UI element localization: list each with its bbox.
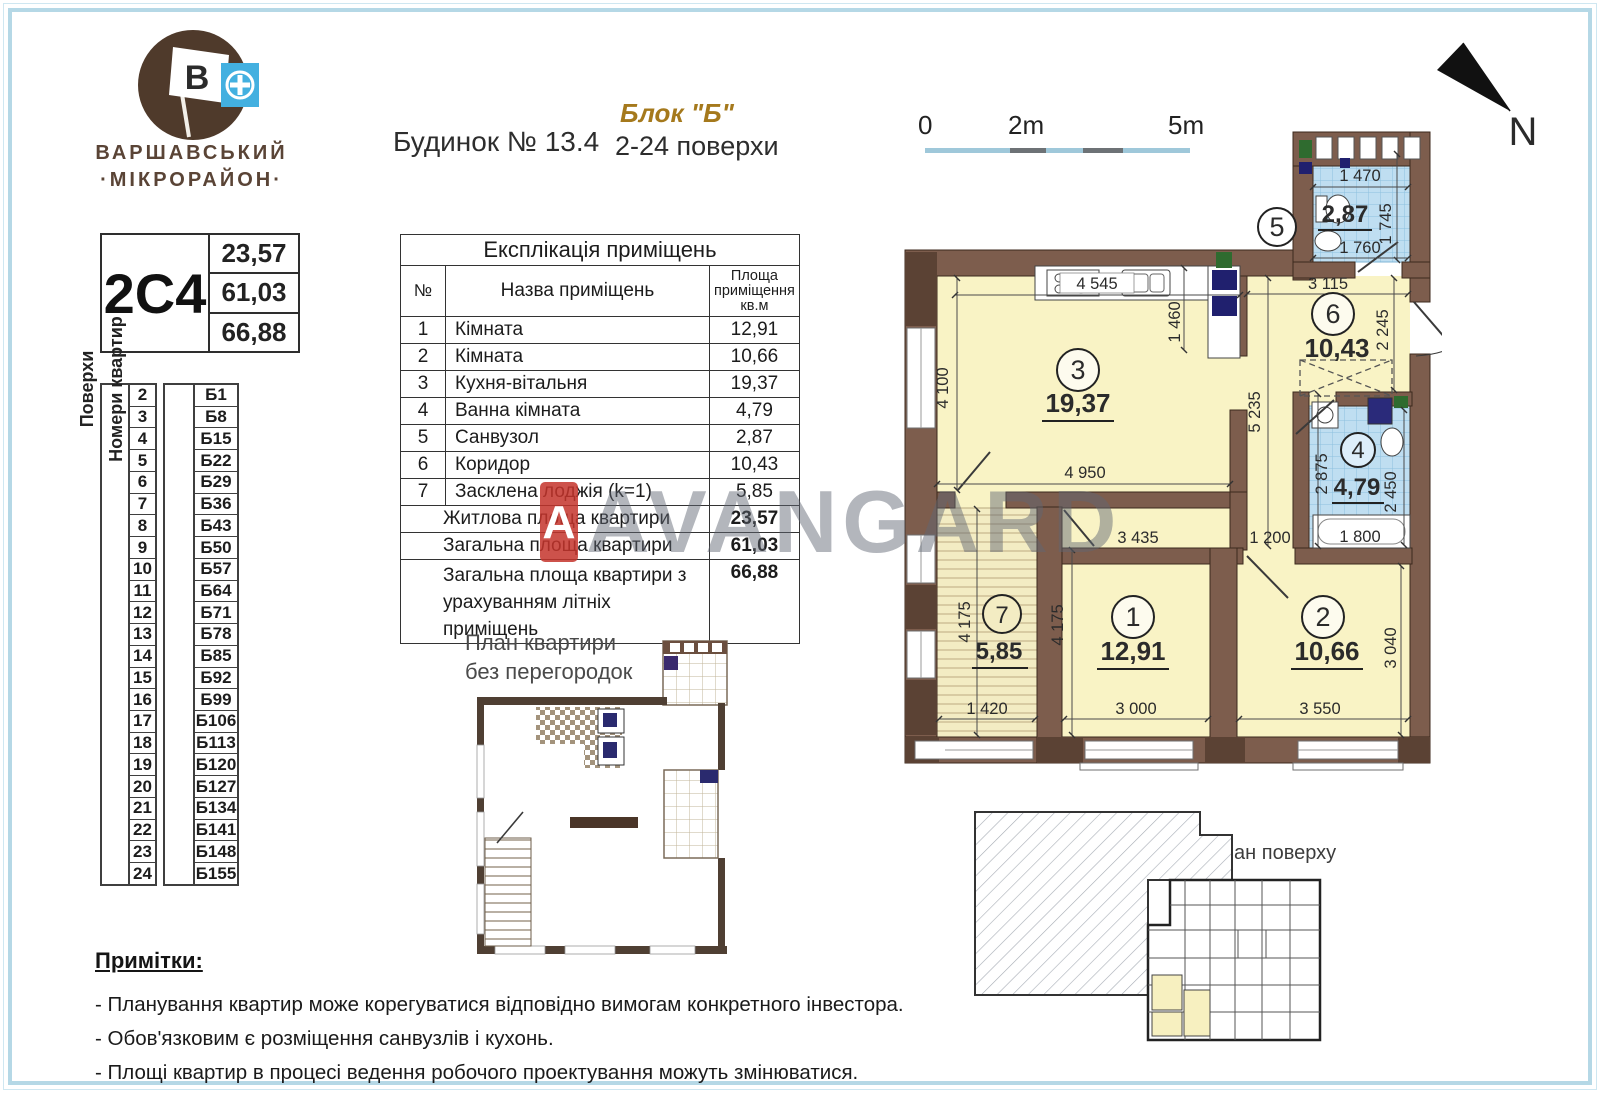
floor-cell: 21 xyxy=(130,798,155,820)
apt-cell: Б71 xyxy=(195,602,237,624)
room-area: 10,66 xyxy=(1294,636,1359,666)
floor-cell: 20 xyxy=(130,776,155,798)
apartment-plan: 4 545 1 460 4 100 4 950 5 235 3 435 1 20… xyxy=(893,115,1442,775)
flag-letter: В xyxy=(185,59,210,97)
dim-label: 4 950 xyxy=(1064,464,1105,482)
brand-logo: В xyxy=(125,25,270,150)
row-num: 3 xyxy=(401,371,446,398)
row-name: Засклена лоджія (k=1) xyxy=(446,479,710,506)
dim-label: 1 460 xyxy=(1166,301,1184,342)
apt-cell: Б134 xyxy=(195,798,237,820)
row-num: 5 xyxy=(401,425,446,452)
note-item: - Обов'язковим є розміщення санвузлів і … xyxy=(95,1022,904,1056)
loggia2-shaft xyxy=(700,770,718,783)
unit-card: 2С4 23,57 61,03 66,88 xyxy=(100,233,300,353)
floor-cell: 6 xyxy=(130,472,155,494)
note-item: - Площі квартир в процесі ведення робочо… xyxy=(95,1056,904,1090)
table-row: 3 Кухня-вітальня 19,37 xyxy=(401,371,800,398)
apartments-table: Номери квартир Б1 Б8 Б15 Б22 Б29 Б36 Б43… xyxy=(163,383,239,886)
dim-label: 3 115 xyxy=(1308,275,1348,293)
row-name: Коридор xyxy=(446,452,710,479)
brand-line1: ВАРШАВСЬКИЙ xyxy=(84,140,299,167)
floor-cell: 11 xyxy=(130,581,155,603)
row-name: Санвузол xyxy=(446,425,710,452)
floor-cell: 24 xyxy=(130,863,155,884)
total-area: 61,03 xyxy=(710,533,800,560)
total-area: 66,88 xyxy=(710,560,800,644)
col-header-num: № xyxy=(401,266,446,317)
table-row: 2 Кімната 10,66 xyxy=(401,344,800,371)
dim-label: 1 760 xyxy=(1339,239,1380,257)
dim-label: 1 200 xyxy=(1249,529,1290,547)
total-area: 23,57 xyxy=(710,506,800,533)
room-area: 2,87 xyxy=(1322,201,1369,228)
dim-label: 2 245 xyxy=(1374,309,1392,350)
dim-label: 3 435 xyxy=(1117,529,1158,547)
block-title: Блок "Б" xyxy=(620,98,734,129)
floor-cell: 13 xyxy=(130,624,155,646)
row-area: 2,87 xyxy=(710,425,800,452)
explication-title: Експлікація приміщень xyxy=(401,235,800,266)
floor-cell: 2 xyxy=(130,385,155,407)
floor-cell: 10 xyxy=(130,559,155,581)
apartments-label-cell: Номери квартир xyxy=(165,385,195,884)
floor-cell: 3 xyxy=(130,407,155,429)
row-num: 1 xyxy=(401,317,446,344)
floor-cell: 9 xyxy=(130,537,155,559)
floor-cell: 16 xyxy=(130,689,155,711)
dim-label: 3 550 xyxy=(1299,700,1340,718)
apt-cell: Б148 xyxy=(195,841,237,863)
dim-label: 4 100 xyxy=(934,367,952,408)
floors-label: Поверхи xyxy=(77,351,98,428)
row-name: Кімната xyxy=(446,317,710,344)
dim-label: 4 175 xyxy=(1049,604,1067,645)
floor-cell: 5 xyxy=(130,450,155,472)
row-name: Кухня-вітальня xyxy=(446,371,710,398)
unit-living-area: 23,57 xyxy=(210,235,298,274)
stripe-strip xyxy=(485,838,531,946)
dim-label: 3 000 xyxy=(1115,700,1156,718)
apt-cell: Б141 xyxy=(195,820,237,842)
unit-total-area: 61,03 xyxy=(210,274,298,313)
row-area: 10,43 xyxy=(710,452,800,479)
table-row: 5 Санвузол 2,87 xyxy=(401,425,800,452)
room-area: 12,91 xyxy=(1100,636,1165,666)
apt-cell: Б1 xyxy=(195,385,237,407)
dim-label: 3 040 xyxy=(1382,627,1400,668)
room-area: 4,79 xyxy=(1334,474,1381,501)
apt-cell: Б99 xyxy=(195,689,237,711)
room-number: 4 xyxy=(1351,437,1364,464)
note-item: - Планування квартир може корегуватися в… xyxy=(95,988,904,1022)
balcony-shaft xyxy=(664,656,678,670)
apt-cell: Б8 xyxy=(195,407,237,429)
north-arrow: N xyxy=(1430,33,1545,155)
washbasin-icon xyxy=(1381,428,1403,456)
floor-cell: 14 xyxy=(130,646,155,668)
notes-list: - Планування квартир може корегуватися в… xyxy=(95,988,904,1090)
apartments-label: Номери квартир xyxy=(106,316,127,462)
dim-label: 1 800 xyxy=(1339,528,1380,546)
table-row: 4 Ванна кімната 4,79 xyxy=(401,398,800,425)
col-header-area: Площа приміщення кв.м xyxy=(710,266,800,317)
room-area: 19,37 xyxy=(1045,388,1110,418)
floor-cell: 23 xyxy=(130,841,155,863)
row-name: Кімната xyxy=(446,344,710,371)
building-title: Будинок № 13.4 xyxy=(393,126,599,158)
floor-cell: 4 xyxy=(130,428,155,450)
floor-cell: 19 xyxy=(130,754,155,776)
apt-cell: Б113 xyxy=(195,733,237,755)
building-footprint xyxy=(1148,880,1320,1040)
apt-cell: Б155 xyxy=(195,863,237,884)
floor-cell: 22 xyxy=(130,820,155,842)
row-area: 10,66 xyxy=(710,344,800,371)
apt-cell: Б127 xyxy=(195,776,237,798)
room-number: 2 xyxy=(1315,602,1330,632)
floors-range: 2-24 поверхи xyxy=(615,131,779,162)
north-arrow-dark xyxy=(1437,43,1510,111)
floor-cell: 12 xyxy=(130,602,155,624)
row-area: 4,79 xyxy=(710,398,800,425)
floor-cell: 18 xyxy=(130,733,155,755)
room-number: 7 xyxy=(995,602,1008,629)
floor-cell: 8 xyxy=(130,515,155,537)
apartments-column: Б1 Б8 Б15 Б22 Б29 Б36 Б43 Б50 Б57 Б64 Б7… xyxy=(195,385,237,884)
island-bar xyxy=(570,817,638,828)
row-name: Ванна кімната xyxy=(446,398,710,425)
dim-label: 5 235 xyxy=(1246,391,1264,432)
apt-cell: Б36 xyxy=(195,494,237,516)
floor-cell: 17 xyxy=(130,711,155,733)
room-number: 3 xyxy=(1070,355,1085,385)
dim-label: 2 450 xyxy=(1382,471,1400,512)
total-row: Загальна площа квартири 61,03 xyxy=(401,533,800,560)
table-row: 7 Засклена лоджія (k=1) 5,85 xyxy=(401,479,800,506)
total-name: Житлова площа квартири xyxy=(401,506,710,533)
secondary-plan xyxy=(445,636,740,961)
floorplan-sheet: В ВАРШАВСЬКИЙ ·МІКРОРАЙОН· 2С4 23,57 61,… xyxy=(0,0,1600,1093)
apt-cell: Б64 xyxy=(195,581,237,603)
row-area: 12,91 xyxy=(710,317,800,344)
room-number: 1 xyxy=(1125,602,1140,632)
dim-label: 4 545 xyxy=(1076,275,1117,293)
row-area: 19,37 xyxy=(710,371,800,398)
unit-total-with-summer: 66,88 xyxy=(210,314,298,351)
row-num: 4 xyxy=(401,398,446,425)
row-area: 5,85 xyxy=(710,479,800,506)
table-row: 1 Кімната 12,91 xyxy=(401,317,800,344)
room-area: 5,85 xyxy=(976,638,1023,665)
brand-line2: ·МІКРОРАЙОН· xyxy=(84,167,299,194)
cabinet-icon xyxy=(1368,398,1392,424)
apt-cell: Б57 xyxy=(195,559,237,581)
room-area: 10,43 xyxy=(1304,333,1369,363)
apt-cell: Б15 xyxy=(195,428,237,450)
apt-cell: Б43 xyxy=(195,515,237,537)
washbasin-icon xyxy=(1315,231,1341,251)
table-row: 6 Коридор 10,43 xyxy=(401,452,800,479)
row-num: 7 xyxy=(401,479,446,506)
mini-appliances xyxy=(598,709,624,765)
total-name: Загальна площа квартири xyxy=(401,533,710,560)
apt-cell: Б85 xyxy=(195,646,237,668)
floor-cell: 15 xyxy=(130,668,155,690)
apt-cell: Б92 xyxy=(195,668,237,690)
notes-title: Примітки: xyxy=(95,948,203,974)
row-num: 6 xyxy=(401,452,446,479)
floors-column: 2 3 4 5 6 7 8 9 10 11 12 13 14 15 16 17 … xyxy=(130,385,155,884)
apt-cell: Б78 xyxy=(195,624,237,646)
room-number: 5 xyxy=(1269,212,1284,242)
loggia2-grid xyxy=(664,770,718,858)
floor-cell: 7 xyxy=(130,494,155,516)
apt-cell: Б120 xyxy=(195,754,237,776)
north-label: N xyxy=(1509,110,1538,154)
dim-label: 1 420 xyxy=(966,700,1007,718)
apt-cell: Б50 xyxy=(195,537,237,559)
floor-overview-plan xyxy=(960,795,1340,1050)
apt-cell: Б29 xyxy=(195,472,237,494)
dim-label: 4 175 xyxy=(956,601,974,642)
brand-name: ВАРШАВСЬКИЙ ·МІКРОРАЙОН· xyxy=(84,140,299,194)
apt-cell: Б106 xyxy=(195,711,237,733)
row-num: 2 xyxy=(401,344,446,371)
col-header-name: Назва приміщень xyxy=(446,266,710,317)
total-row: Житлова площа квартири 23,57 xyxy=(401,506,800,533)
explication-table: Експлікація приміщень № Назва приміщень … xyxy=(400,234,800,644)
room-number: 6 xyxy=(1325,299,1340,329)
dim-label: 1 470 xyxy=(1339,167,1380,185)
apt-cell: Б22 xyxy=(195,450,237,472)
dim-label: 2 875 xyxy=(1313,453,1331,494)
